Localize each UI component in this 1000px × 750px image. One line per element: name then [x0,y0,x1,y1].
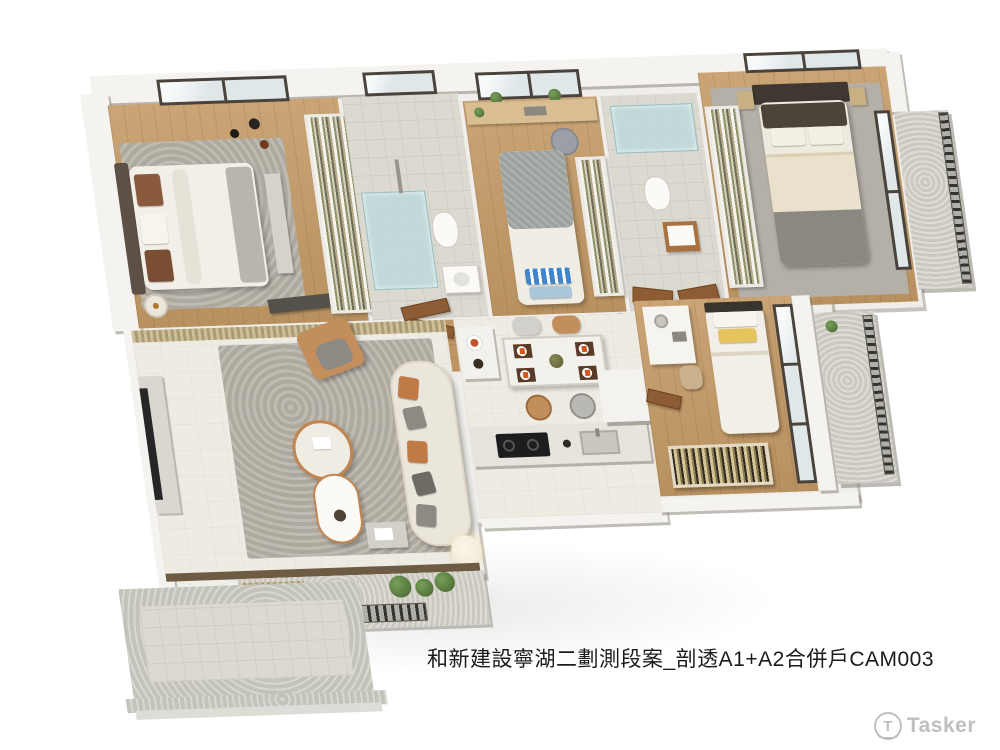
kidsroom-gray-blanket [498,150,575,230]
bedroom1-pendant-lamp-dot1 [229,129,239,138]
bathroom1-washbasin [442,265,482,294]
tasker-logo-icon: T [874,712,902,740]
bedroom3-single-bed [705,307,781,434]
bathroom2-washbasin [667,225,696,246]
kidsroom-lightblue-cushion [529,285,573,298]
placemat-4 [578,366,598,381]
bedroom1-pillow-brown [133,174,163,207]
master-cream-duvet [765,151,861,212]
bedroom3-yellow-pillow [718,328,758,343]
dining-chair-gray-top [511,317,542,336]
room-secondary-bedroom-left [108,97,369,328]
page: { "caption": { "text": "和新建設寧湖二劃測段案_剖透A1… [0,0,1000,750]
kitchen-faucet [595,429,600,437]
dining-stool-gray [568,393,598,420]
bathroom1-shower-column [394,159,403,193]
living-sofa-pillow-gray-1 [402,405,428,430]
bedroom1-pillow-white [139,214,169,245]
terrace-plant-2 [414,578,435,597]
room-small-bedroom-right [633,295,836,496]
bedroom3-vanity-desk [642,305,696,364]
living-side-table-papers [374,528,394,541]
master-dark-pillows [760,102,847,129]
dining-stool-tan [524,394,554,421]
master-foot-throw-gray [773,209,869,266]
bathroom1-window-glass [366,73,434,93]
kitchen-burner-2 [526,439,540,451]
master-white-pillow-1 [770,127,806,146]
bedroom1-duvet-fold [171,169,203,285]
kitchen-cooktop [495,432,550,458]
bathroom1-window [362,70,437,96]
bedroom3-door [646,388,682,410]
room-dining-kitchen [453,313,663,518]
dining-table-marble [502,334,609,387]
master-white-pillow-2 [808,126,844,145]
bedroom3-balcony-railing [862,315,894,475]
kitchen-counter [468,421,651,467]
bedroom3-desk-items [672,331,687,341]
dining-island-plate [465,335,483,351]
entry-shoe-cabinet [668,443,774,488]
bathroom2-toilet [642,176,673,211]
kitchen-sink [579,430,620,455]
kidsroom-blue-striped-pillow [524,267,572,285]
caption: 和新建設寧湖二劃測段案_剖透A1+A2合併戶CAM003 [427,643,934,673]
master-window-east-mullion [885,190,901,194]
floorplan-render [92,52,989,690]
watermark-label: Tasker [907,714,976,738]
bathroom2-basin-cabinet [662,221,700,252]
bedroom1-pendant-lamp-dot3 [259,140,269,149]
master-nightstand-right [848,87,867,105]
bedroom3-duvet-fold [711,351,770,357]
kitchen-kettle [562,440,571,448]
living-coffee-table-vase [333,509,347,521]
dining-island-food [470,339,479,347]
bathroom2-glass-tub [610,103,699,154]
bedroom1-pendant-lamp-dot2 [248,118,261,129]
living-coffee-table-book [312,437,332,450]
kidsroom-single-bed [498,150,586,306]
master-balcony-railing [938,112,972,284]
living-sofa-pillow-orange-2 [407,440,428,463]
kidsroom-desk [465,98,598,124]
bathroom1-basin-bowl [452,272,470,286]
placemat-2 [575,342,595,357]
living-sofa-pillow-gray-2 [416,504,436,528]
room-living [131,320,480,582]
living-sofa-pillow-orange-1 [398,376,420,401]
kidsroom-desk-items [524,106,547,116]
bedroom3-white-pillow [712,311,758,327]
bedroom3-balcony-plant [825,320,839,332]
watermark: T Tasker [874,712,976,740]
bedroom1-double-bed [128,162,269,290]
room-master-bedroom [698,66,919,308]
bathroom1-glass-shower [361,190,439,290]
dining-island-coffee [473,359,484,369]
living-side-table [365,521,409,548]
bathroom1-door [400,298,450,322]
living-sofa-pillow-charcoal [411,471,437,497]
dining-chair-tan-top [551,315,582,334]
kidsroom-desk-plant [474,107,485,117]
kitchen-burner-1 [502,439,516,451]
bedroom1-pillow-brown-2 [144,249,174,282]
terrace-plant-3 [433,572,456,593]
terrace-sunken-patio-floor [139,600,354,683]
terrace-sunken-patio-wall [118,581,374,701]
bathroom1-toilet [430,211,461,248]
placemat-3 [516,368,536,383]
bedroom1-window [156,75,290,105]
master-window-north [743,49,862,73]
dining-centerpiece-plant [548,354,564,368]
dining-service-island [456,326,499,379]
bedroom3-vanity-mirror [653,314,669,328]
terrace-plant-1 [388,575,413,598]
bedroom3-chair [678,365,703,390]
master-nightstand-left [736,91,755,109]
living-armchair-throw [313,336,355,372]
bedroom1-floor-lamp-bulb [152,303,159,309]
placemat-1 [513,344,533,359]
